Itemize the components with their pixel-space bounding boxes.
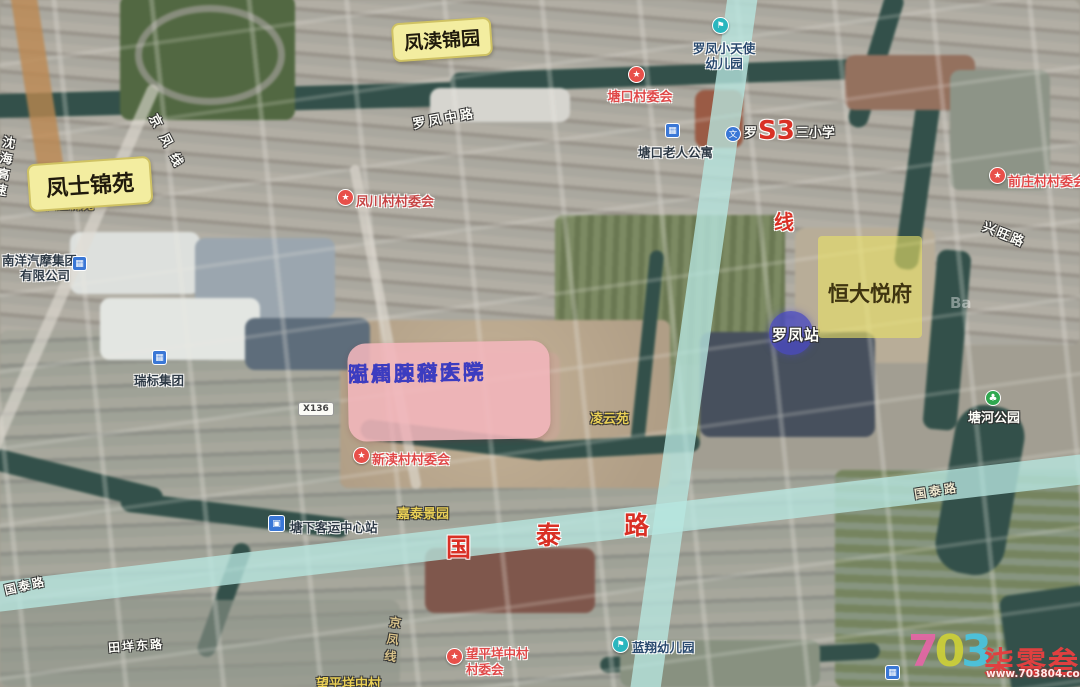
annotation-hospital-box: 温州医科大学 附属肿瘤医院 [347, 340, 551, 442]
map-attribution-fragment: Ba [950, 294, 972, 312]
village-committee-pin[interactable]: ★ [989, 167, 1006, 184]
watermark-url: www.703804.com [986, 668, 1080, 680]
watermark: 7 0 3 柒零叁 www.703804.com [908, 630, 1080, 687]
building-pin[interactable]: ▦ [885, 665, 900, 680]
poi-label-nanyang-2: 有限公司 [20, 265, 70, 284]
poi-label-fengchuan-committee: 凤川村村委会 [356, 191, 434, 210]
poi-label-lingyunyuan: 凌云苑 [590, 408, 629, 427]
annotation-fengdu-jinyuan: 凤渎锦园 [391, 17, 493, 63]
school-label-suffix: 三小学 [796, 122, 835, 141]
road-badge-x136: X136 [298, 402, 334, 416]
village-committee-pin[interactable]: ★ [446, 648, 463, 665]
company-pin[interactable]: ▦ [152, 350, 167, 365]
poi-label-school: 罗 S3 三小学 [744, 116, 835, 146]
school-label-prefix: 罗 [744, 122, 757, 141]
metro-station-label: 罗凤站 [772, 324, 820, 345]
bus-station-pin[interactable]: ▣ [268, 515, 285, 532]
poi-label-xindu-committee: 新渎村村委会 [372, 449, 450, 468]
poi-label-wangping-2: 村委会 [466, 659, 504, 678]
kindergarten-pin[interactable]: ⚑ [712, 17, 729, 34]
poi-label-jiatai: 嘉泰景园 [397, 503, 449, 522]
poi-label-luofeng-kids-2: 幼儿园 [688, 53, 760, 72]
apartment-pin[interactable]: ▦ [665, 123, 680, 138]
annotation-hengda-label: 恒大悦府 [820, 278, 920, 308]
guotai-char-3: 路 [624, 506, 649, 542]
poi-label-qianzhuang-committee: 前庄村村委会 [1008, 171, 1080, 190]
satellite-map[interactable]: Ba 罗凤中路 京凤线 京凤线 兴旺路 沈海高速 国泰路 国泰路 田垟东路 X1… [0, 0, 1080, 687]
company-pin[interactable]: ▦ [72, 256, 87, 271]
s3-line-code: S3 [758, 116, 795, 146]
poi-label-tangkou-committee: 塘口村委会 [595, 86, 685, 105]
poi-label-tanghe-park: 塘河公园 [968, 407, 1020, 426]
kindergarten-pin[interactable]: ⚑ [612, 636, 629, 653]
annotation-fengshi-jinyuan: 凤士锦苑 [26, 156, 153, 213]
guotai-char-1: 国 [446, 528, 471, 564]
park-pin[interactable]: ♣ [985, 390, 1001, 406]
village-committee-pin[interactable]: ★ [353, 447, 370, 464]
poi-label-bus-center: 塘下客运中心站 [290, 517, 378, 536]
hospital-label-line2: 附属肿瘤医院 [347, 354, 486, 392]
poi-label-lanxiang: 蓝翔幼儿园 [632, 637, 695, 656]
poi-label-ruibiao: 瑞标集团 [134, 370, 184, 389]
poi-label-tangkou-apartments: 塘口老人公寓 [638, 142, 713, 161]
guotai-char-2: 泰 [536, 516, 561, 552]
village-committee-pin[interactable]: ★ [337, 189, 354, 206]
poi-label-wangping-area: 望平垟中村 [316, 673, 381, 687]
village-committee-pin[interactable]: ★ [628, 66, 645, 83]
s3-line-char-xian: 线 [774, 206, 794, 235]
school-pin[interactable]: 文 [725, 126, 741, 142]
